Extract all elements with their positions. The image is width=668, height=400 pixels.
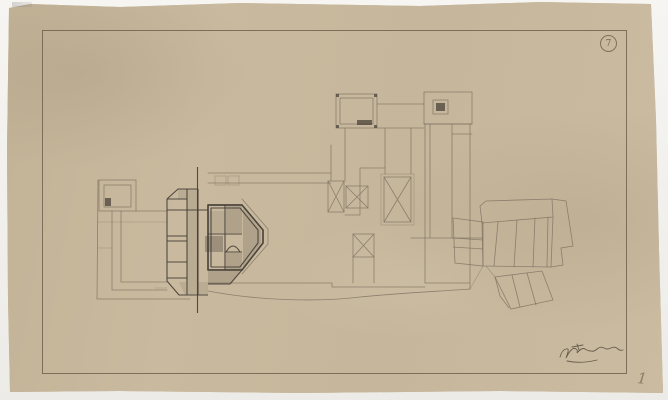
- floor-plan-drawing: [0, 0, 668, 400]
- north-wing: [331, 92, 483, 289]
- tower-plan: [167, 189, 208, 295]
- architect-signature-mark: [560, 344, 623, 362]
- west-block-outline: [97, 180, 190, 299]
- sheet-number-stamp: 7: [600, 35, 617, 52]
- corner-page-number: 1: [636, 369, 658, 393]
- chapel-apse-plan: [205, 199, 268, 284]
- sheet-number-text: 7: [606, 39, 612, 49]
- angled-wing: [453, 199, 573, 309]
- stair-x-boxes: [328, 174, 414, 283]
